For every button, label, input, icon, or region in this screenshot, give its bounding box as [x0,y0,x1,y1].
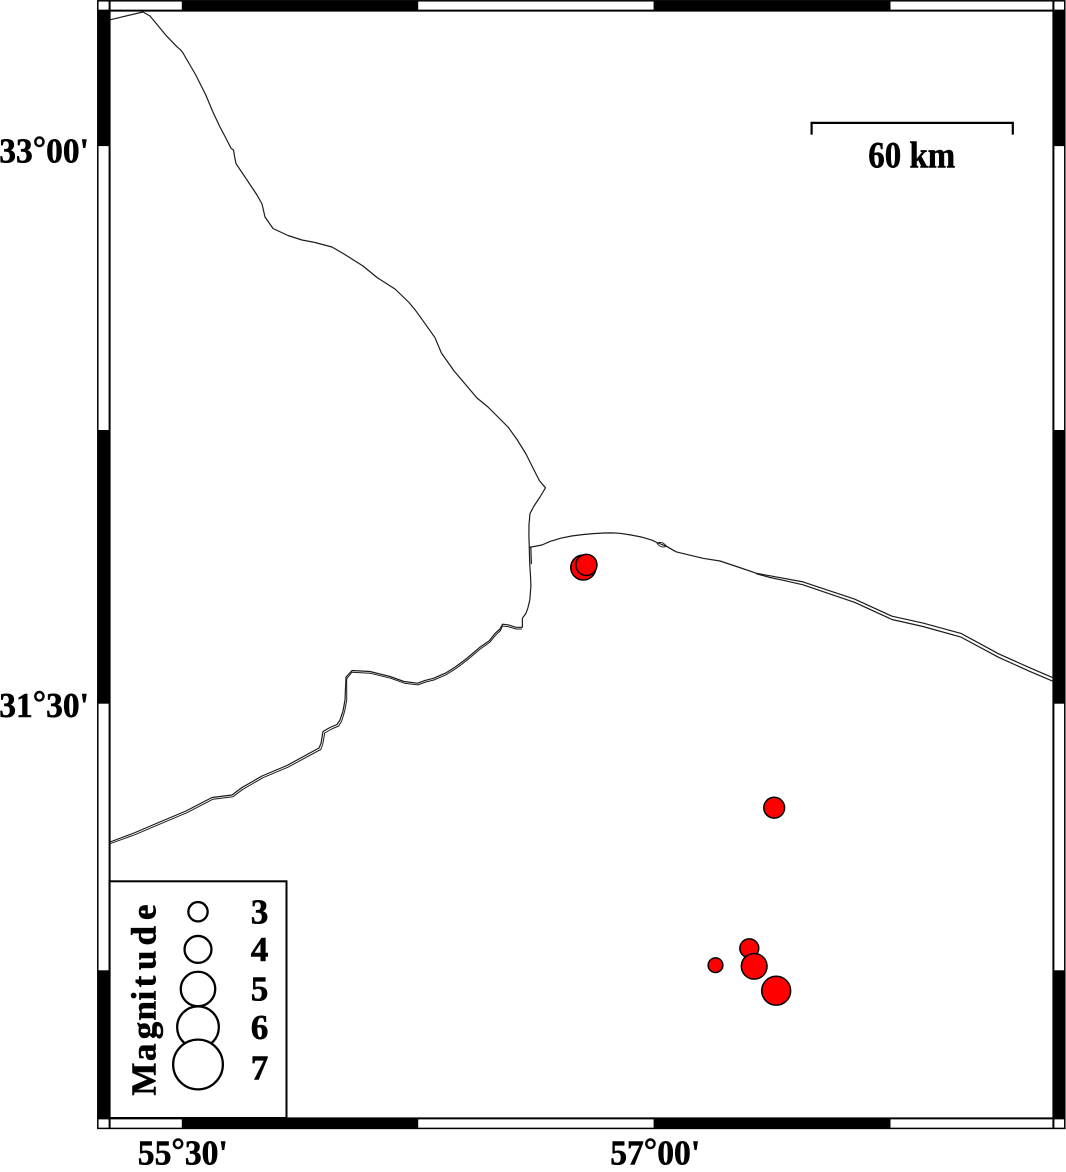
svg-text:d: d [125,925,164,945]
svg-text:a: a [125,1044,164,1062]
svg-text:3: 3 [251,892,269,931]
svg-text:5: 5 [251,970,269,1009]
svg-text:31°30': 31°30' [0,683,89,725]
svg-text:n: n [125,1001,164,1020]
svg-text:t: t [125,975,164,987]
svg-text:33°00': 33°00' [0,128,89,170]
svg-text:55°30': 55°30' [138,1130,228,1167]
svg-text:i: i [125,991,164,1001]
svg-text:M: M [125,1063,164,1096]
svg-text:e: e [125,904,164,920]
svg-text:g: g [125,1021,164,1039]
svg-text:7: 7 [251,1049,269,1088]
svg-text:60 km: 60 km [868,135,955,176]
svg-text:6: 6 [251,1008,269,1047]
svg-text:u: u [125,951,164,970]
svg-text:57°00': 57°00' [610,1130,700,1167]
svg-text:4: 4 [251,930,269,969]
